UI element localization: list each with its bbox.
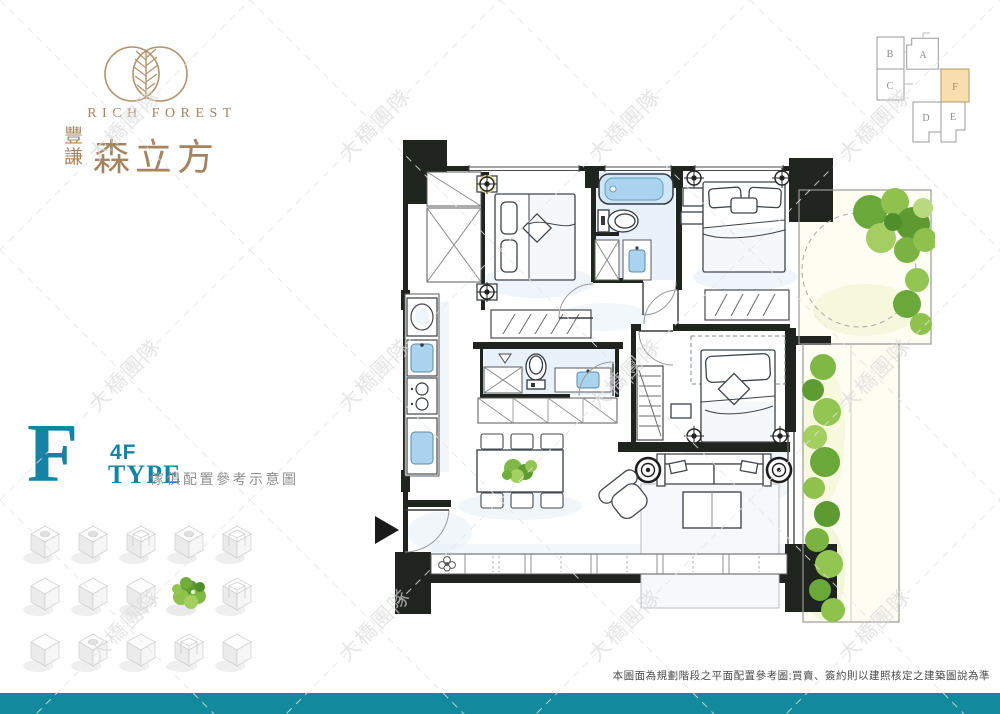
brand-name-zh-small: 豐謙	[64, 126, 86, 169]
type-letter: F	[27, 412, 78, 496]
vanity-sink-icon	[623, 240, 651, 280]
footer-accent-bar	[0, 693, 1000, 714]
brochure-page: RICH FOREST 豐謙 森立方 A B C D E F F 4F TYPE…	[0, 0, 1000, 714]
cube-icons	[23, 526, 251, 672]
key-plan-unit-label-f: F	[952, 82, 958, 93]
counter-sink-icon	[407, 418, 437, 474]
key-plan: A B C D E F	[868, 32, 976, 144]
living-room	[596, 454, 791, 608]
brand-name-zh: 豐謙 森立方	[64, 126, 219, 181]
toilet-icon	[598, 210, 638, 232]
type-subtitle: 傢俱配置參考示意圖	[150, 469, 299, 489]
key-plan-unit-label-b: B	[887, 49, 894, 60]
column	[395, 552, 431, 614]
toilet-icon	[526, 354, 546, 389]
key-plan-unit-label-c: C	[887, 81, 894, 92]
entrance-arrow-icon	[375, 516, 399, 544]
speaker-icon	[767, 458, 791, 482]
brand-name-zh-large: 森立方	[93, 127, 219, 181]
kitchen-sink-icon	[407, 340, 437, 376]
key-plan-unit-label-a: A	[919, 50, 927, 61]
kitchen	[405, 294, 439, 476]
bathtub-icon	[599, 174, 673, 204]
coffee-table-icon	[683, 492, 741, 528]
bed-icon	[681, 182, 785, 272]
media-cabinet	[431, 554, 787, 574]
cube-art-grid	[20, 520, 270, 680]
speaker-icon	[636, 458, 660, 482]
brand-name-en: RICH FOREST	[62, 106, 262, 122]
key-plan-unit-label-e: E	[950, 112, 956, 123]
key-plan-unit-label-d: D	[922, 113, 929, 124]
green-tree-cube-icon	[166, 577, 206, 616]
dining-set	[477, 434, 563, 508]
hall-cabinet	[478, 398, 617, 423]
washing-machine-icon	[407, 298, 437, 336]
floor-plan	[365, 132, 935, 627]
bed-icon	[671, 336, 785, 442]
rich-forest-logo	[88, 38, 212, 114]
stove-icon	[407, 378, 437, 414]
sofa-icon	[657, 454, 771, 486]
disclaimer-text: 本圖面為規劃階段之平面配置參考圖;買賣、簽約則以建照核定之建築圖說為準	[613, 668, 990, 683]
logo-circles-leaf-icon	[105, 47, 187, 101]
